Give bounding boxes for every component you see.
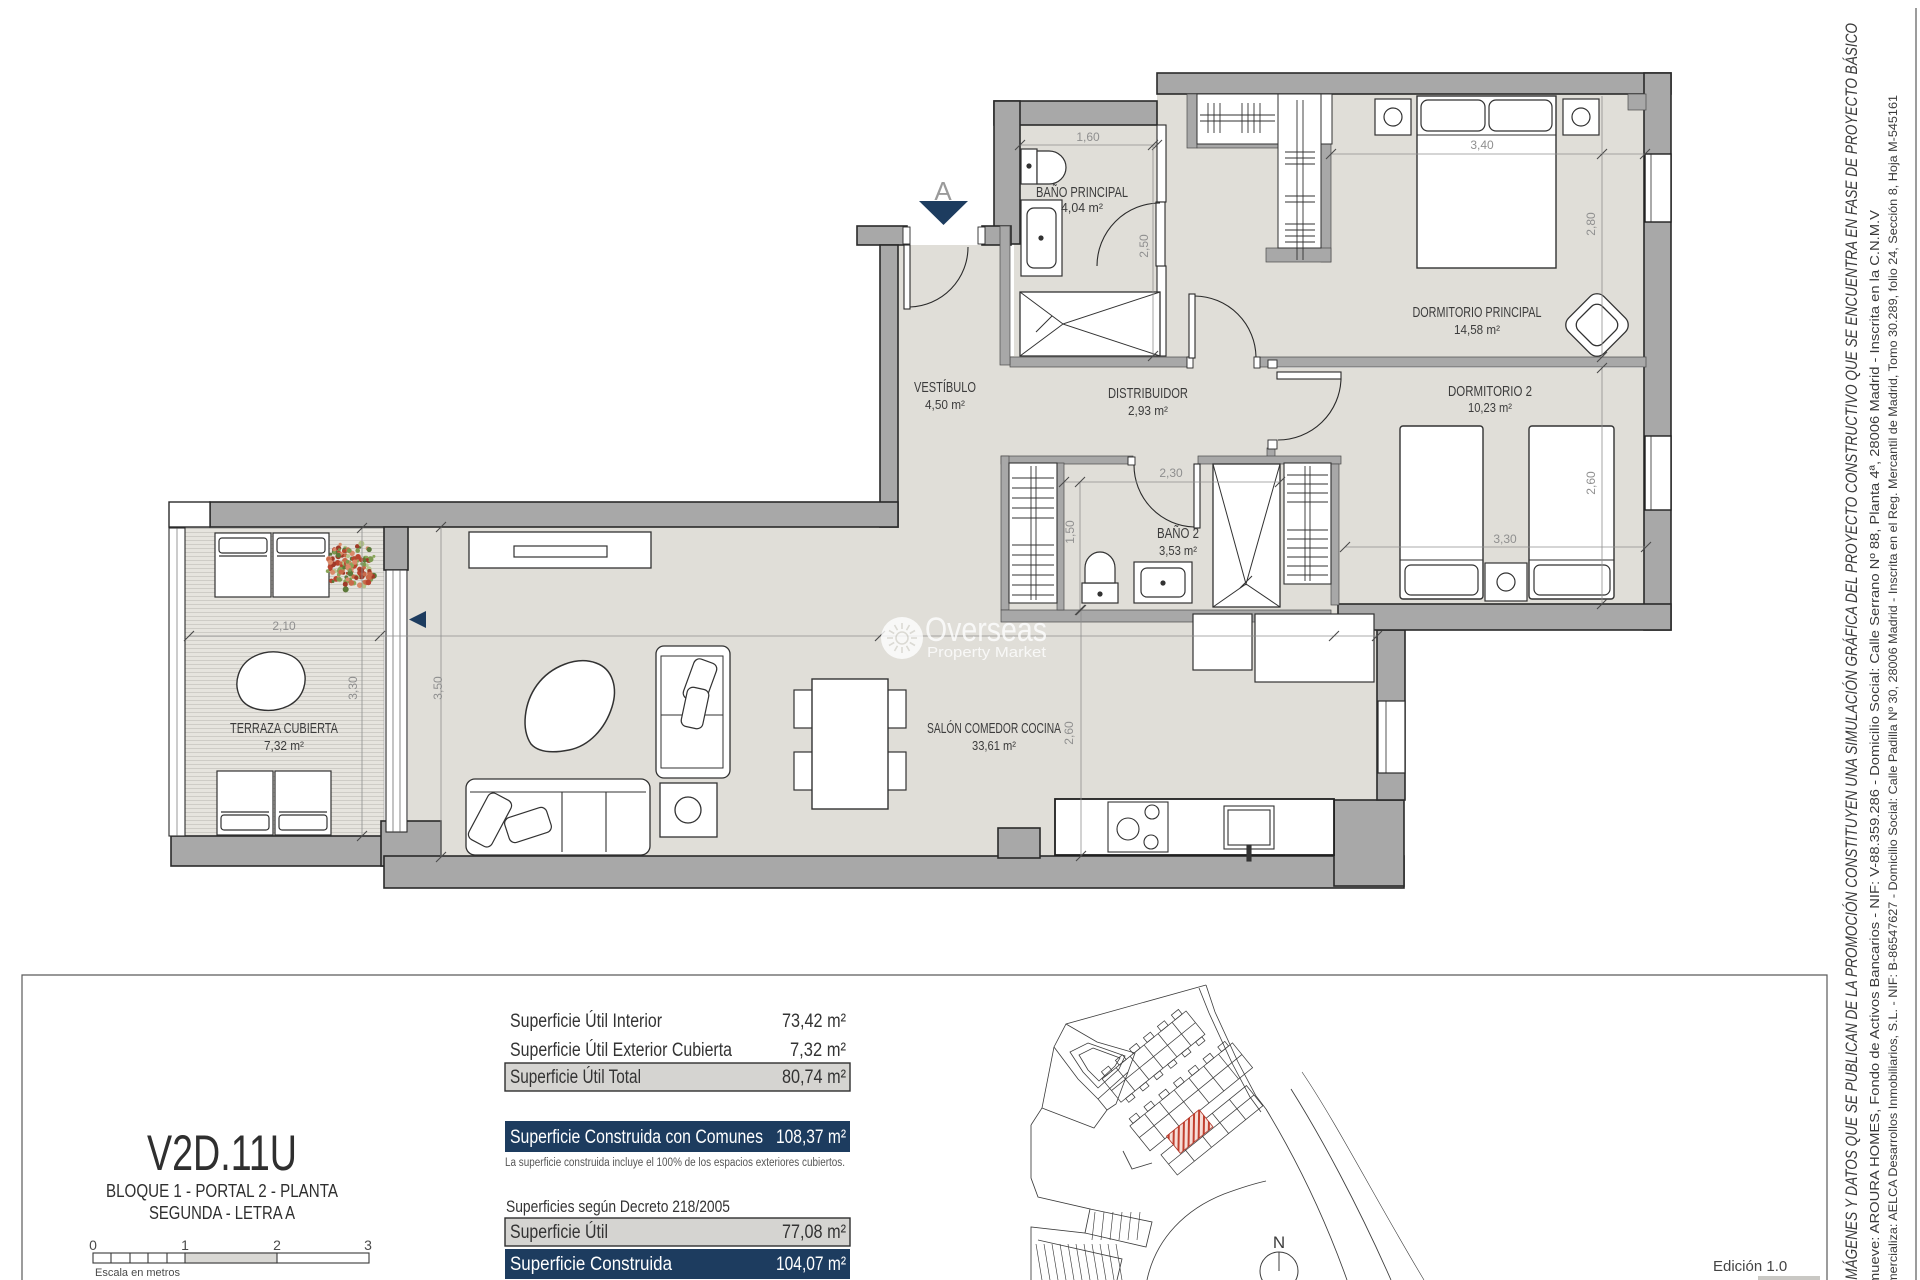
svg-text:14,58 m²: 14,58 m² (1454, 323, 1500, 337)
svg-text:V2D.11U: V2D.11U (147, 1125, 297, 1181)
svg-text:2,30: 2,30 (1159, 466, 1183, 480)
svg-text:Promueve: AROURA HOMES, Fondo: Promueve: AROURA HOMES, Fondo de Activos… (1867, 210, 1882, 1280)
svg-text:SALÓN COMEDOR COCINA: SALÓN COMEDOR COCINA (927, 720, 1061, 737)
svg-text:DORMITORIO PRINCIPAL: DORMITORIO PRINCIPAL (1413, 304, 1542, 321)
svg-text:N: N (1273, 1233, 1285, 1252)
svg-text:BAÑO 2: BAÑO 2 (1157, 525, 1199, 542)
svg-text:Edición 1.0: Edición 1.0 (1713, 1258, 1787, 1275)
svg-text:2,60: 2,60 (1584, 471, 1598, 495)
svg-text:2,10: 2,10 (272, 619, 296, 633)
svg-text:4,50 m²: 4,50 m² (925, 398, 965, 412)
svg-text:BAÑO PRINCIPAL: BAÑO PRINCIPAL (1036, 184, 1128, 201)
svg-text:0: 0 (89, 1237, 97, 1253)
svg-text:SEGUNDA - LETRA A: SEGUNDA - LETRA A (149, 1203, 295, 1223)
svg-text:Superficie Construida: Superficie Construida (510, 1254, 672, 1275)
svg-text:108,37 m²: 108,37 m² (776, 1127, 846, 1148)
svg-text:Property Market: Property Market (927, 644, 1047, 661)
svg-text:3: 3 (364, 1237, 372, 1253)
svg-text:104,07 m²: 104,07 m² (776, 1254, 846, 1275)
svg-text:LAS IMÁGENES Y DATOS QUE SE PU: LAS IMÁGENES Y DATOS QUE SE PUBLICAN DE … (1842, 23, 1861, 1280)
svg-text:3,40: 3,40 (1470, 138, 1494, 152)
svg-text:VESTÍBULO: VESTÍBULO (914, 379, 976, 396)
svg-text:La superficie construida inclu: La superficie construida incluye el 100%… (505, 1157, 845, 1169)
svg-text:Superficie Útil: Superficie Útil (510, 1221, 608, 1243)
svg-text:73,42 m²: 73,42 m² (782, 1011, 846, 1032)
svg-text:2,80: 2,80 (1584, 212, 1598, 236)
svg-text:DISTRIBUIDOR: DISTRIBUIDOR (1108, 385, 1188, 402)
svg-text:80,74 m²: 80,74 m² (782, 1067, 846, 1088)
svg-text:Superficies según Decreto 218/: Superficies según Decreto 218/2005 (506, 1197, 730, 1216)
svg-text:3,30: 3,30 (1493, 532, 1517, 546)
svg-text:Superficie Útil Exterior Cubie: Superficie Útil Exterior Cubierta (510, 1039, 732, 1061)
svg-text:1,50: 1,50 (1063, 520, 1077, 544)
svg-text:1,60: 1,60 (1076, 130, 1100, 144)
svg-text:10,23 m²: 10,23 m² (1468, 401, 1512, 415)
svg-text:2: 2 (273, 1237, 281, 1253)
svg-text:BLOQUE 1 - PORTAL 2 - PLANTA: BLOQUE 1 - PORTAL 2 - PLANTA (106, 1181, 338, 1201)
svg-text:7,32 m²: 7,32 m² (790, 1040, 846, 1061)
svg-text:Superficie Construida con Comu: Superficie Construida con Comunes (510, 1127, 763, 1148)
svg-text:1: 1 (181, 1237, 189, 1253)
svg-text:DORMITORIO 2: DORMITORIO 2 (1448, 383, 1532, 400)
svg-text:7,32 m²: 7,32 m² (264, 739, 304, 753)
svg-text:3,50: 3,50 (431, 676, 445, 700)
svg-text:77,08 m²: 77,08 m² (782, 1222, 846, 1243)
svg-text:TERRAZA CUBIERTA: TERRAZA CUBIERTA (230, 720, 338, 737)
svg-text:33,61 m²: 33,61 m² (972, 739, 1016, 753)
svg-text:Superficie Útil Interior: Superficie Útil Interior (510, 1010, 663, 1032)
svg-text:3,30: 3,30 (346, 676, 360, 700)
svg-text:4,04 m²: 4,04 m² (1061, 201, 1103, 215)
svg-text:2,93 m²: 2,93 m² (1128, 404, 1168, 418)
svg-text:2,60: 2,60 (1062, 721, 1076, 745)
svg-text:Superficie Útil Total: Superficie Útil Total (510, 1066, 641, 1088)
svg-text:Escala en metros: Escala en metros (95, 1267, 180, 1279)
svg-text:2,50: 2,50 (1137, 234, 1151, 258)
svg-text:Comercializa: AELCA Desarrollo: Comercializa: AELCA Desarrollos Inmobili… (1886, 95, 1900, 1280)
svg-text:3,53 m²: 3,53 m² (1159, 544, 1197, 558)
